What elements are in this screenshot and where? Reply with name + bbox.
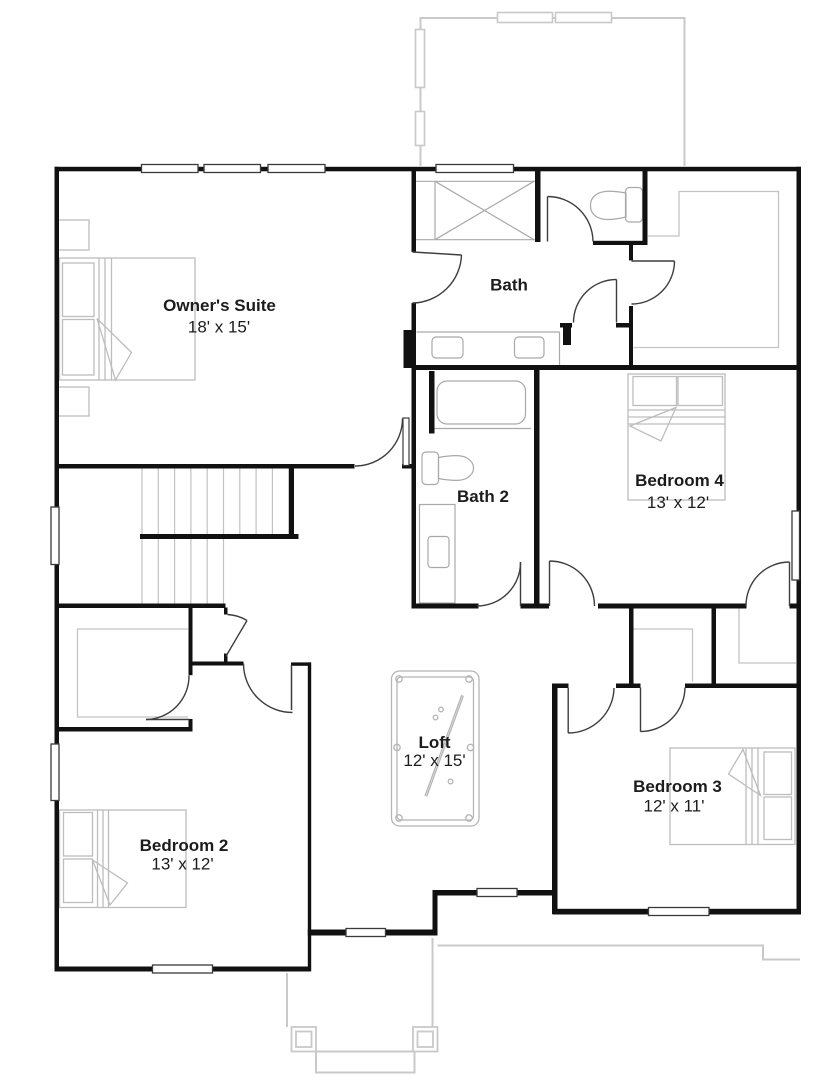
svg-text:Bath 2: Bath 2 (457, 487, 509, 506)
svg-text:Bedroom 4: Bedroom 4 (635, 471, 724, 490)
svg-text:12' x 15': 12' x 15' (403, 751, 465, 770)
svg-text:Owner's Suite: Owner's Suite (163, 296, 276, 315)
svg-text:Bedroom 3: Bedroom 3 (633, 777, 722, 796)
svg-text:Bedroom 2: Bedroom 2 (140, 836, 229, 855)
svg-text:13' x 12': 13' x 12' (151, 855, 213, 874)
svg-text:Bath: Bath (490, 276, 528, 295)
svg-text:12' x 11': 12' x 11' (644, 797, 705, 816)
svg-text:Loft: Loft (418, 733, 450, 752)
svg-text:13' x 12': 13' x 12' (647, 493, 709, 512)
svg-text:18' x 15': 18' x 15' (188, 318, 250, 337)
